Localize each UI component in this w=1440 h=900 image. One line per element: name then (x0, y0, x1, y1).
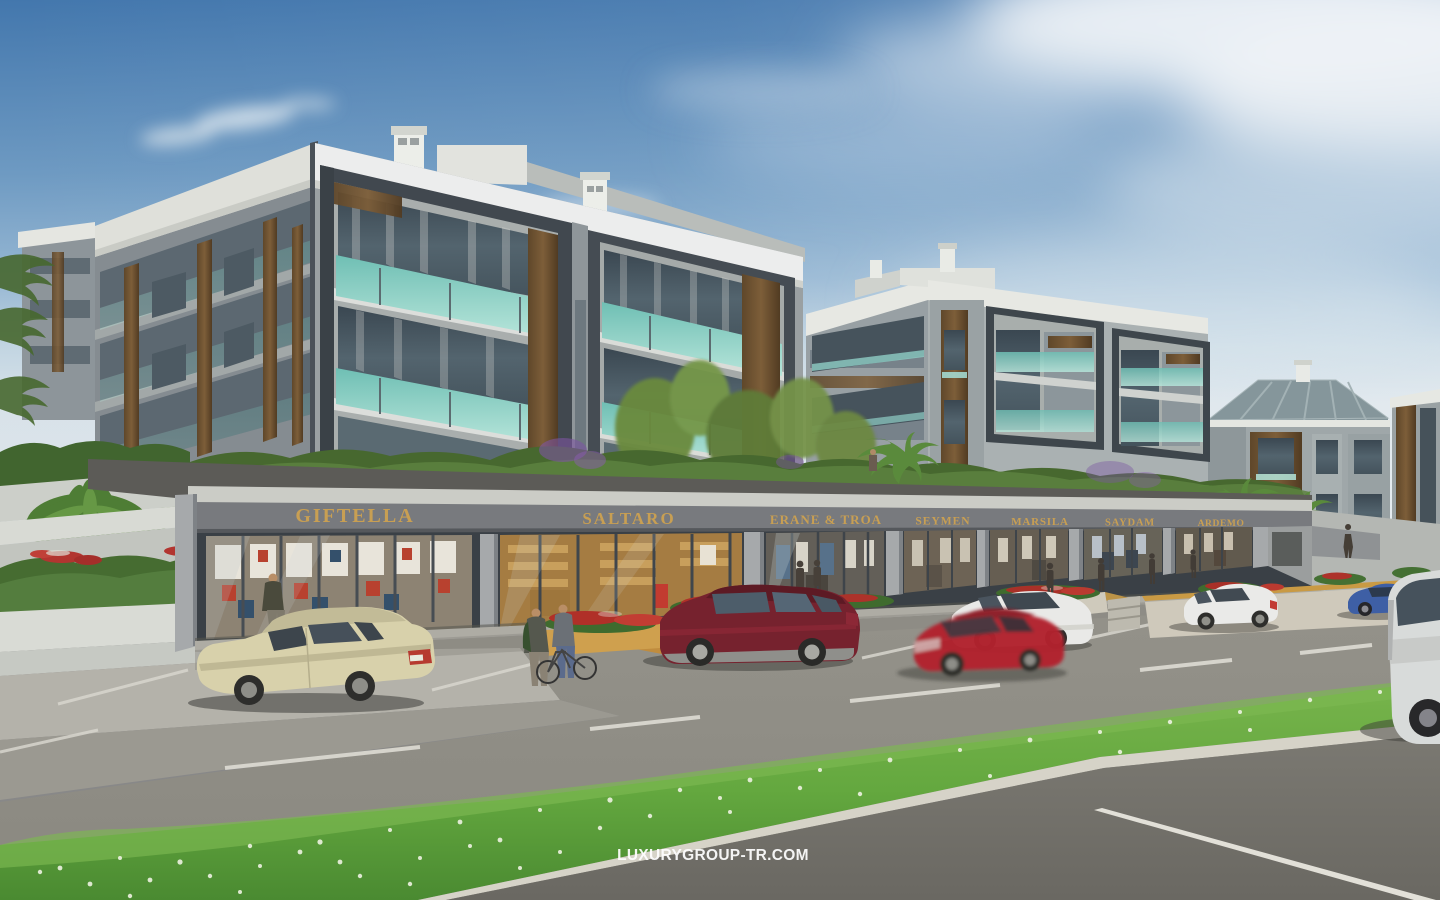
svg-text:MARSILA: MARSILA (1011, 516, 1069, 528)
svg-text:GIFTELLA: GIFTELLA (295, 505, 414, 527)
svg-text:SEYMEN: SEYMEN (915, 516, 970, 528)
svg-text:ERANE & TROA: ERANE & TROA (770, 512, 882, 527)
svg-text:SALTARO: SALTARO (582, 509, 675, 528)
svg-text:SAYDAM: SAYDAM (1105, 518, 1155, 529)
svg-text:ARDEMO: ARDEMO (1198, 519, 1245, 529)
svg-text:LUXURYGROUP-TR.COM: LUXURYGROUP-TR.COM (617, 847, 809, 864)
